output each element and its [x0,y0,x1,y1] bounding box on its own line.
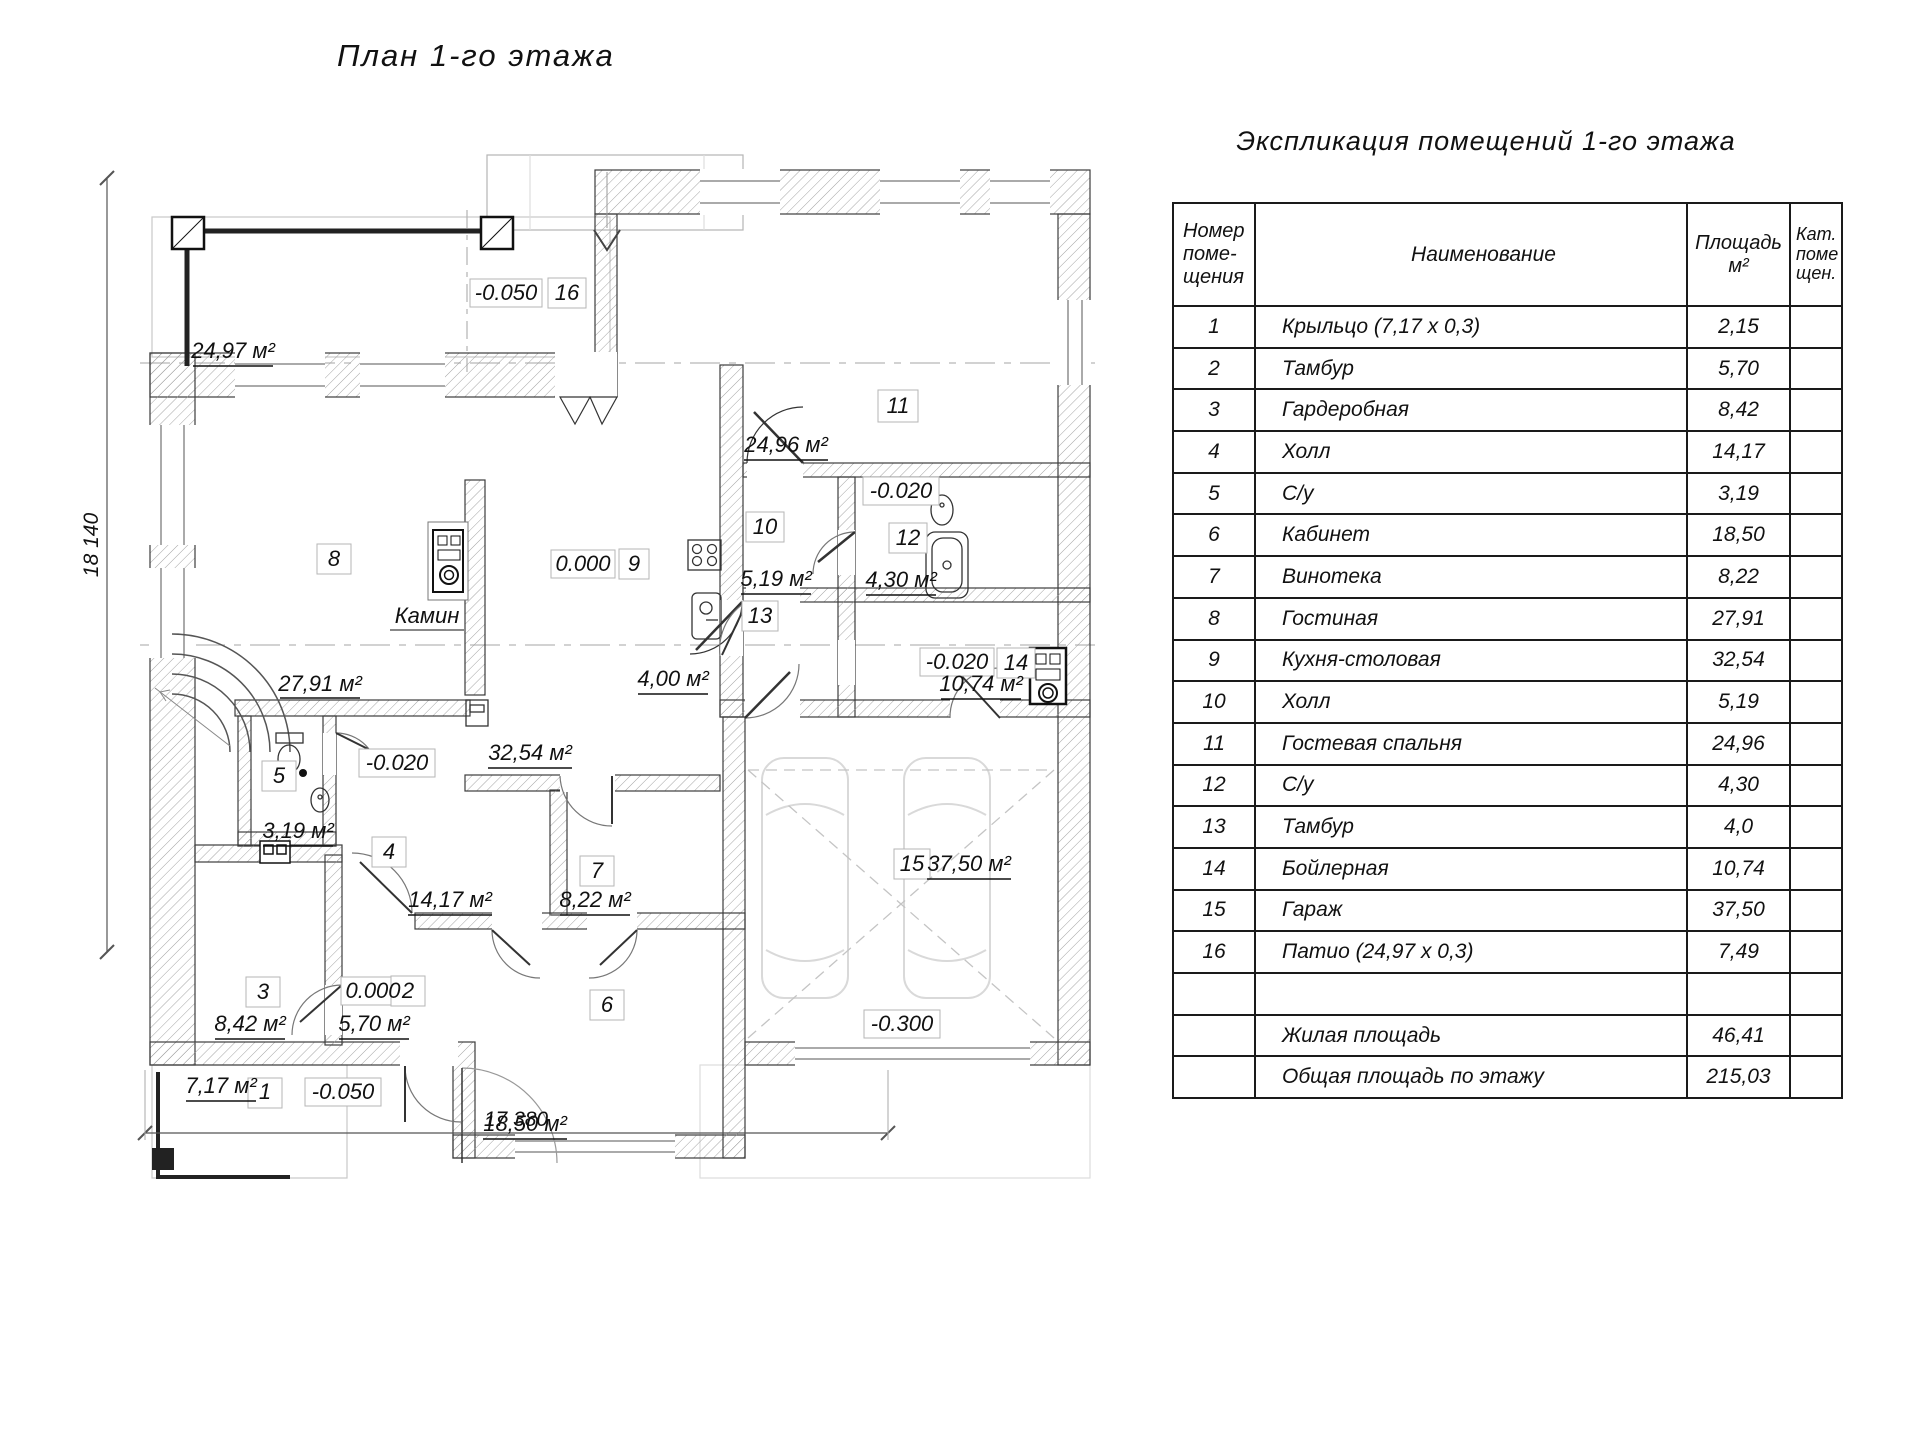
room12-number: 12 [896,525,920,550]
cell-num: 14 [1173,848,1255,890]
cell-cat [1790,723,1842,765]
garage-elevation-label: -0.300 [871,1011,934,1036]
car-outlines [762,758,990,998]
cell-area [1687,973,1790,1015]
cell-name: Гостевая спальня [1255,723,1687,765]
room2-number: 2 [401,978,414,1003]
cell-name: Тамбур [1255,348,1687,390]
cell-name: Кухня-столовая [1255,640,1687,682]
cell-area: 8,42 [1687,389,1790,431]
cell-name: Общая площадь по этажу [1255,1056,1687,1098]
cell-area: 14,17 [1687,431,1790,473]
room1-area-label: 7,17 м² [185,1073,257,1098]
cell-area: 37,50 [1687,890,1790,932]
cell-num: 9 [1173,640,1255,682]
cell-num [1173,1056,1255,1098]
cell-name: Бойлерная [1255,848,1687,890]
room1-number: 1 [259,1079,271,1104]
cell-cat [1790,890,1842,932]
tambour-elevation-label: 0.000 [345,978,401,1003]
room15-area-label: 37,50 м² [927,851,1011,876]
cell-name: Тамбур [1255,806,1687,848]
room15-number: 15 [900,851,925,876]
room6-area-label: 18,50 м² [483,1111,567,1136]
dimension-left: 18 140 [80,513,103,578]
cell-name: Гараж [1255,890,1687,932]
cell-area: 32,54 [1687,640,1790,682]
cell-num: 2 [1173,348,1255,390]
cell-area: 2,15 [1687,306,1790,348]
room10-number: 10 [753,514,778,539]
cell-num: 8 [1173,598,1255,640]
cell-name: Кабинет [1255,514,1687,556]
table-row: 10Холл5,19 [1173,681,1842,723]
table-row: 2Тамбур5,70 [1173,348,1842,390]
cell-name [1255,973,1687,1015]
floor-plan-sheet: { "page": { "title": "План 1-го этажа" }… [0,0,1920,1447]
cell-name: Гостиная [1255,598,1687,640]
cell-name: Холл [1255,681,1687,723]
cell-cat [1790,640,1842,682]
washer-icon [260,841,290,863]
room8-area-label: 27,91 м² [277,671,362,696]
cell-name: Гардеробная [1255,389,1687,431]
cell-cat [1790,848,1842,890]
kitchen-elevation-label: 0.000 [555,551,611,576]
room9-number: 9 [628,551,640,576]
cell-num: 16 [1173,931,1255,973]
header-area: Площадь м² [1687,203,1790,306]
room13-number: 13 [748,603,773,628]
table-row: 14Бойлерная10,74 [1173,848,1842,890]
cell-cat [1790,806,1842,848]
cell-num: 4 [1173,431,1255,473]
cell-name: Патио (24,97 х 0,3) [1255,931,1687,973]
cell-cat [1790,473,1842,515]
room11-area-label: 24,96 м² [743,432,828,457]
cell-num [1173,973,1255,1015]
hall-top-elevation-label: -0.020 [870,478,933,503]
cell-num: 12 [1173,765,1255,807]
room12-area-label: 4,30 м² [865,567,937,592]
cell-num: 5 [1173,473,1255,515]
cell-area: 4,0 [1687,806,1790,848]
cell-num: 15 [1173,890,1255,932]
table-row: 16Патио (24,97 х 0,3)7,49 [1173,931,1842,973]
cell-area: 4,30 [1687,765,1790,807]
table-row: 7Винотека8,22 [1173,556,1842,598]
cell-cat [1790,348,1842,390]
table-row [1173,973,1842,1015]
table-header-row: Номер поме- щения Наименование Площадь м… [1173,203,1842,306]
cell-area: 18,50 [1687,514,1790,556]
cell-name: Крыльцо (7,17 х 0,3) [1255,306,1687,348]
cell-cat [1790,431,1842,473]
cell-cat [1790,765,1842,807]
room10-area-label: 5,19 м² [740,566,812,591]
garage-floor-cross [748,770,1054,1038]
table-row: 1Крыльцо (7,17 х 0,3)2,15 [1173,306,1842,348]
cell-num: 13 [1173,806,1255,848]
room14-area-label: 10,74 м² [939,671,1023,696]
room6-number: 6 [601,992,614,1017]
cell-area: 5,19 [1687,681,1790,723]
cell-cat [1790,973,1842,1015]
cell-area: 8,22 [1687,556,1790,598]
cell-cat [1790,389,1842,431]
room7-number: 7 [591,858,604,883]
room3-area-label: 8,42 м² [214,1011,286,1036]
table-row: 5С/у3,19 [1173,473,1842,515]
cell-name: Холл [1255,431,1687,473]
room13-area-label: 4,00 м² [637,666,709,691]
explication-table: Номер поме- щения Наименование Площадь м… [1172,202,1843,1099]
table-body: 1Крыльцо (7,17 х 0,3)2,152Тамбур5,703Гар… [1173,306,1842,1098]
table-row: 15Гараж37,50 [1173,890,1842,932]
cell-area: 215,03 [1687,1056,1790,1098]
porch-elevation-label: -0.050 [312,1079,375,1104]
table-row: 12С/у4,30 [1173,765,1842,807]
header-number: Номер поме- щения [1173,203,1255,306]
cell-num: 11 [1173,723,1255,765]
table-row: Жилая площадь46,41 [1173,1015,1842,1057]
cell-area: 27,91 [1687,598,1790,640]
table-row: 4Холл14,17 [1173,431,1842,473]
cell-num: 7 [1173,556,1255,598]
cell-cat [1790,306,1842,348]
table-row: Общая площадь по этажу215,03 [1173,1056,1842,1098]
cell-cat [1790,931,1842,973]
cell-area: 5,70 [1687,348,1790,390]
fireplace-icon [428,522,468,600]
cell-name: С/у [1255,473,1687,515]
cell-num [1173,1015,1255,1057]
fireplace-label: Камин [395,603,460,628]
table-row: 11Гостевая спальня24,96 [1173,723,1842,765]
cell-name: С/у [1255,765,1687,807]
cell-cat [1790,1015,1842,1057]
patio-area-label: 24,97 м² [190,338,275,363]
room3-number: 3 [257,979,270,1004]
room2-area-label: 5,70 м² [338,1011,410,1036]
cell-cat [1790,681,1842,723]
wc-elevation-label: -0.020 [366,750,429,775]
cell-area: 46,41 [1687,1015,1790,1057]
cell-cat [1790,1056,1842,1098]
room5-number: 5 [273,763,286,788]
room9-area-label: 32,54 м² [488,740,572,765]
header-name: Наименование [1255,203,1687,306]
cell-cat [1790,514,1842,556]
cell-num: 10 [1173,681,1255,723]
cell-num: 3 [1173,389,1255,431]
cell-name: Винотека [1255,556,1687,598]
patio-elevation-label: -0.050 [475,280,538,305]
table-row: 3Гардеробная8,42 [1173,389,1842,431]
cell-area: 10,74 [1687,848,1790,890]
cell-area: 3,19 [1687,473,1790,515]
room16-number: 16 [555,280,580,305]
room8-number: 8 [328,546,341,571]
room11-number: 11 [887,393,910,418]
cell-cat [1790,598,1842,640]
room4-number: 4 [383,839,395,864]
header-category: Кат. поме щен. [1790,203,1842,306]
table-row: 9Кухня-столовая32,54 [1173,640,1842,682]
cell-name: Жилая площадь [1255,1015,1687,1057]
room7-area-label: 8,22 м² [559,887,631,912]
table-row: 6Кабинет18,50 [1173,514,1842,556]
dimension-lines [100,171,895,1140]
table-row: 13Тамбур4,0 [1173,806,1842,848]
room5-area-label: 3,19 м² [262,818,334,843]
table-row: 8Гостиная27,91 [1173,598,1842,640]
cell-area: 7,49 [1687,931,1790,973]
cell-cat [1790,556,1842,598]
cell-num: 1 [1173,306,1255,348]
cell-area: 24,96 [1687,723,1790,765]
cell-num: 6 [1173,514,1255,556]
room4-area-label: 14,17 м² [408,887,492,912]
